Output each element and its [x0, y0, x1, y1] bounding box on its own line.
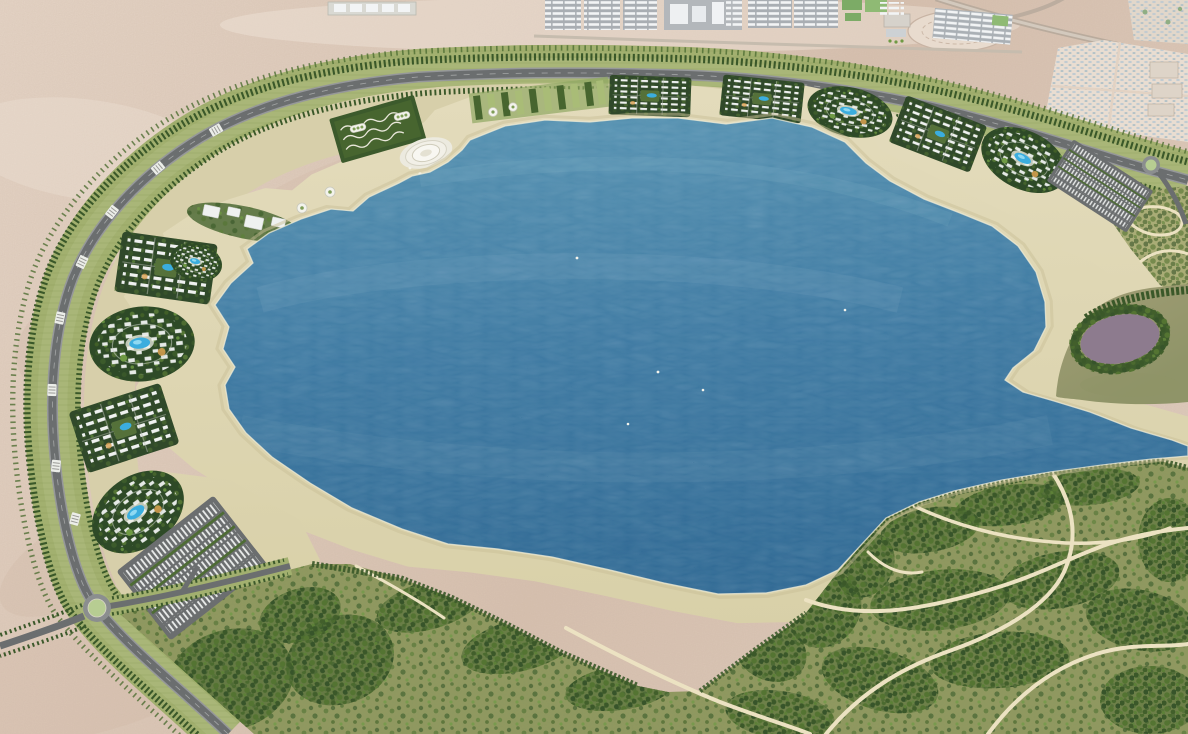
crosswalk-mark: [51, 460, 61, 473]
boat-dot: [702, 389, 705, 392]
warehouse-block: [664, 0, 742, 30]
sw-roundabout: [83, 594, 111, 622]
boat-dot: [576, 257, 579, 260]
fountain-plaza: [297, 203, 307, 213]
masterplan-rendering: [0, 0, 1188, 734]
fountain-plaza: [489, 108, 498, 117]
crosswalk-mark: [47, 384, 56, 396]
resort-village: [609, 75, 692, 118]
boat-dot: [657, 371, 660, 374]
ne-roundabout: [1142, 156, 1160, 174]
boat-dot: [844, 309, 847, 312]
masterplan-svg: [0, 0, 1188, 734]
boat-dot: [627, 423, 630, 426]
warehouse-block: [545, 0, 657, 30]
fountain-plaza: [509, 103, 518, 112]
fountain-plaza: [325, 187, 335, 197]
logistics-facility-west: [328, 2, 416, 15]
